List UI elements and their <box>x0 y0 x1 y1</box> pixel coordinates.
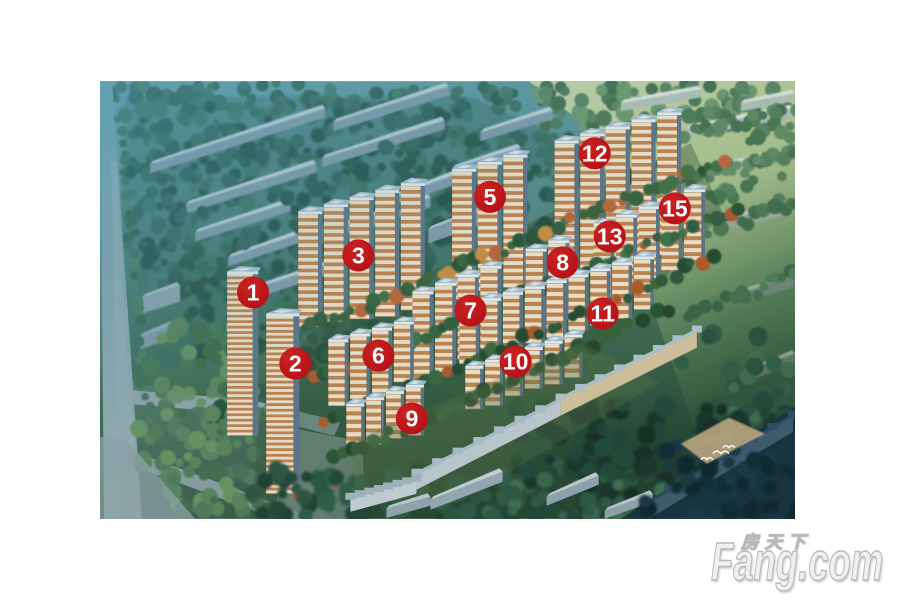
svg-text:10: 10 <box>503 349 529 375</box>
svg-text:6: 6 <box>372 343 385 369</box>
svg-text:7: 7 <box>464 298 477 324</box>
svg-text:13: 13 <box>597 223 623 249</box>
svg-text:2: 2 <box>289 351 302 377</box>
svg-text:12: 12 <box>582 140 608 166</box>
svg-text:3: 3 <box>352 242 365 268</box>
svg-text:9: 9 <box>405 405 418 431</box>
svg-text:15: 15 <box>662 195 688 221</box>
svg-text:1: 1 <box>247 280 260 306</box>
svg-text:5: 5 <box>484 184 497 210</box>
svg-text:11: 11 <box>591 301 616 327</box>
svg-text:8: 8 <box>556 249 569 275</box>
